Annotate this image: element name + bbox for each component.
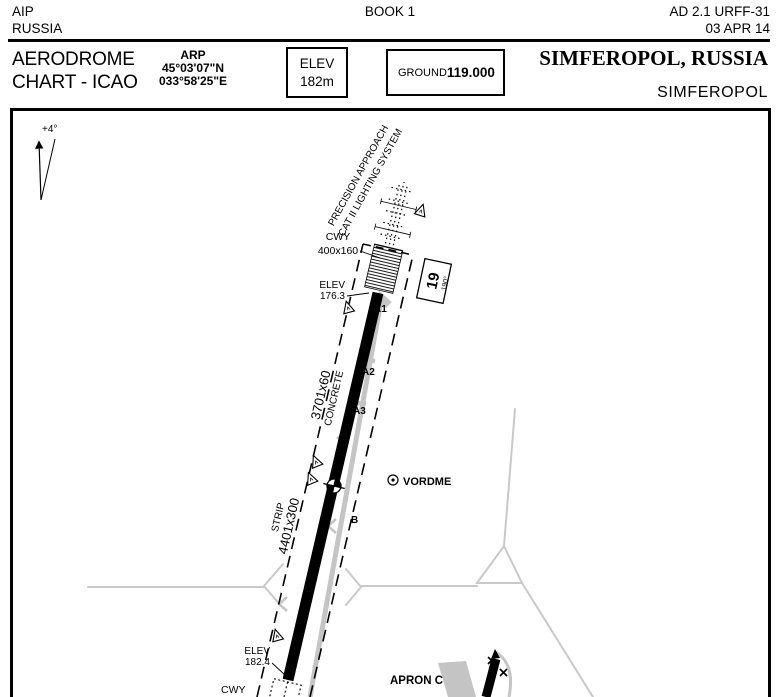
clearway-bottom-label: CWY bbox=[221, 684, 246, 696]
taxiway-b-label: B bbox=[351, 515, 358, 526]
clearway-top-label: CWY bbox=[326, 231, 351, 243]
north-arrow-group: +4° bbox=[39, 124, 57, 200]
road-southeast bbox=[522, 583, 593, 697]
closed-runway-pavement bbox=[486, 659, 496, 697]
thr01-clearway-group bbox=[268, 679, 301, 697]
aerodrome-chart-canvas: 19 190° +4° VORDME bbox=[0, 0, 778, 697]
closed-runway-group bbox=[486, 649, 511, 697]
clearway-top-dimensions: 400x160 bbox=[318, 245, 358, 257]
thr19-clearway-group bbox=[361, 178, 421, 294]
thr19-elev-label: ELEV bbox=[319, 280, 345, 291]
closed-marking-x-icon bbox=[500, 669, 507, 676]
obstacle-icon bbox=[414, 203, 428, 217]
taxiway-b-pavement bbox=[310, 294, 389, 697]
vordme-label: VORDME bbox=[403, 476, 451, 488]
taxiway-a2-label: A2 bbox=[362, 367, 375, 378]
taxiway-a1-label: A1 bbox=[374, 304, 387, 315]
true-north-arrow-icon bbox=[39, 142, 41, 200]
road-fork-east-icon bbox=[346, 569, 361, 605]
chart-border bbox=[12, 110, 770, 697]
aip-chart-page: AIP RUSSIA BOOK 1 AD 2.1 URFF-31 03 APR … bbox=[0, 0, 778, 697]
magnetic-north-line-icon bbox=[41, 139, 55, 200]
magnetic-variation-label: +4° bbox=[42, 124, 57, 135]
apron-c-label: APRON C bbox=[390, 675, 443, 687]
taxiway-a3-label: A3 bbox=[353, 406, 366, 417]
thr01-elev-label: ELEV bbox=[244, 646, 270, 657]
runway-designator-box: 19 190° bbox=[417, 259, 454, 304]
road-triangle-junction bbox=[477, 546, 522, 583]
road-north bbox=[504, 409, 515, 546]
obstacle-icon bbox=[303, 470, 318, 485]
clearway-hatched-area bbox=[365, 244, 403, 293]
apron-c-area bbox=[438, 661, 476, 697]
vordme-group: VORDME bbox=[388, 475, 451, 488]
thr19-elev-value: 176.3 bbox=[320, 291, 345, 302]
thr01-elev-value: 182.4 bbox=[245, 657, 270, 668]
